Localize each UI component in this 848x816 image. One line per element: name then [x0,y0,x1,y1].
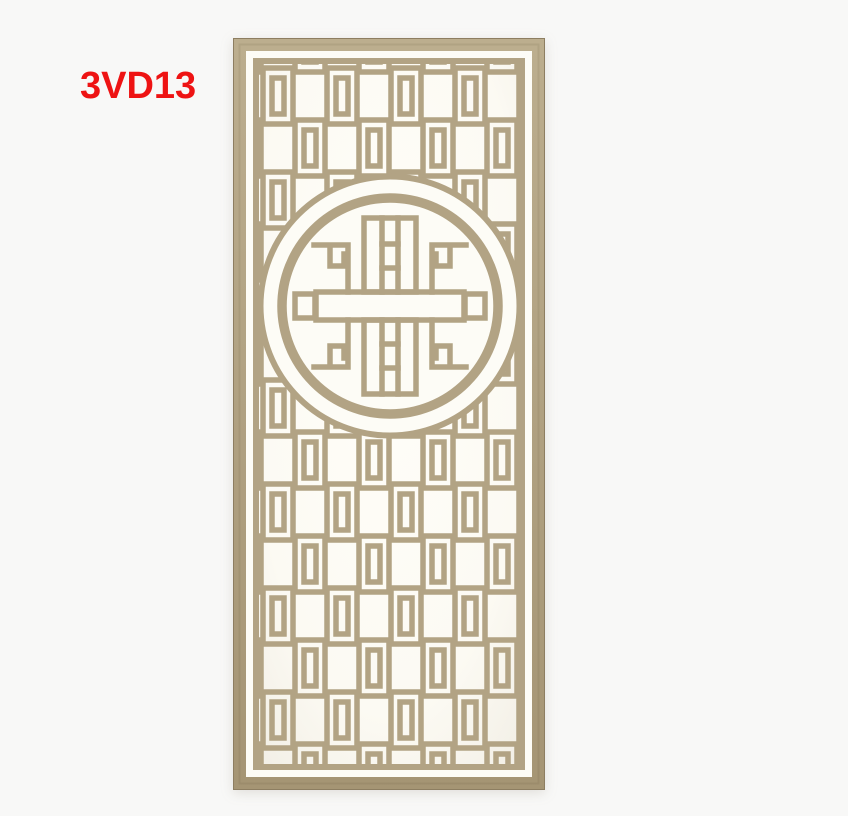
product-code-label: 3VD13 [80,66,196,108]
page-background: 3VD13 [0,0,848,816]
lattice-field [259,64,520,764]
lattice-panel-photo [233,38,545,790]
